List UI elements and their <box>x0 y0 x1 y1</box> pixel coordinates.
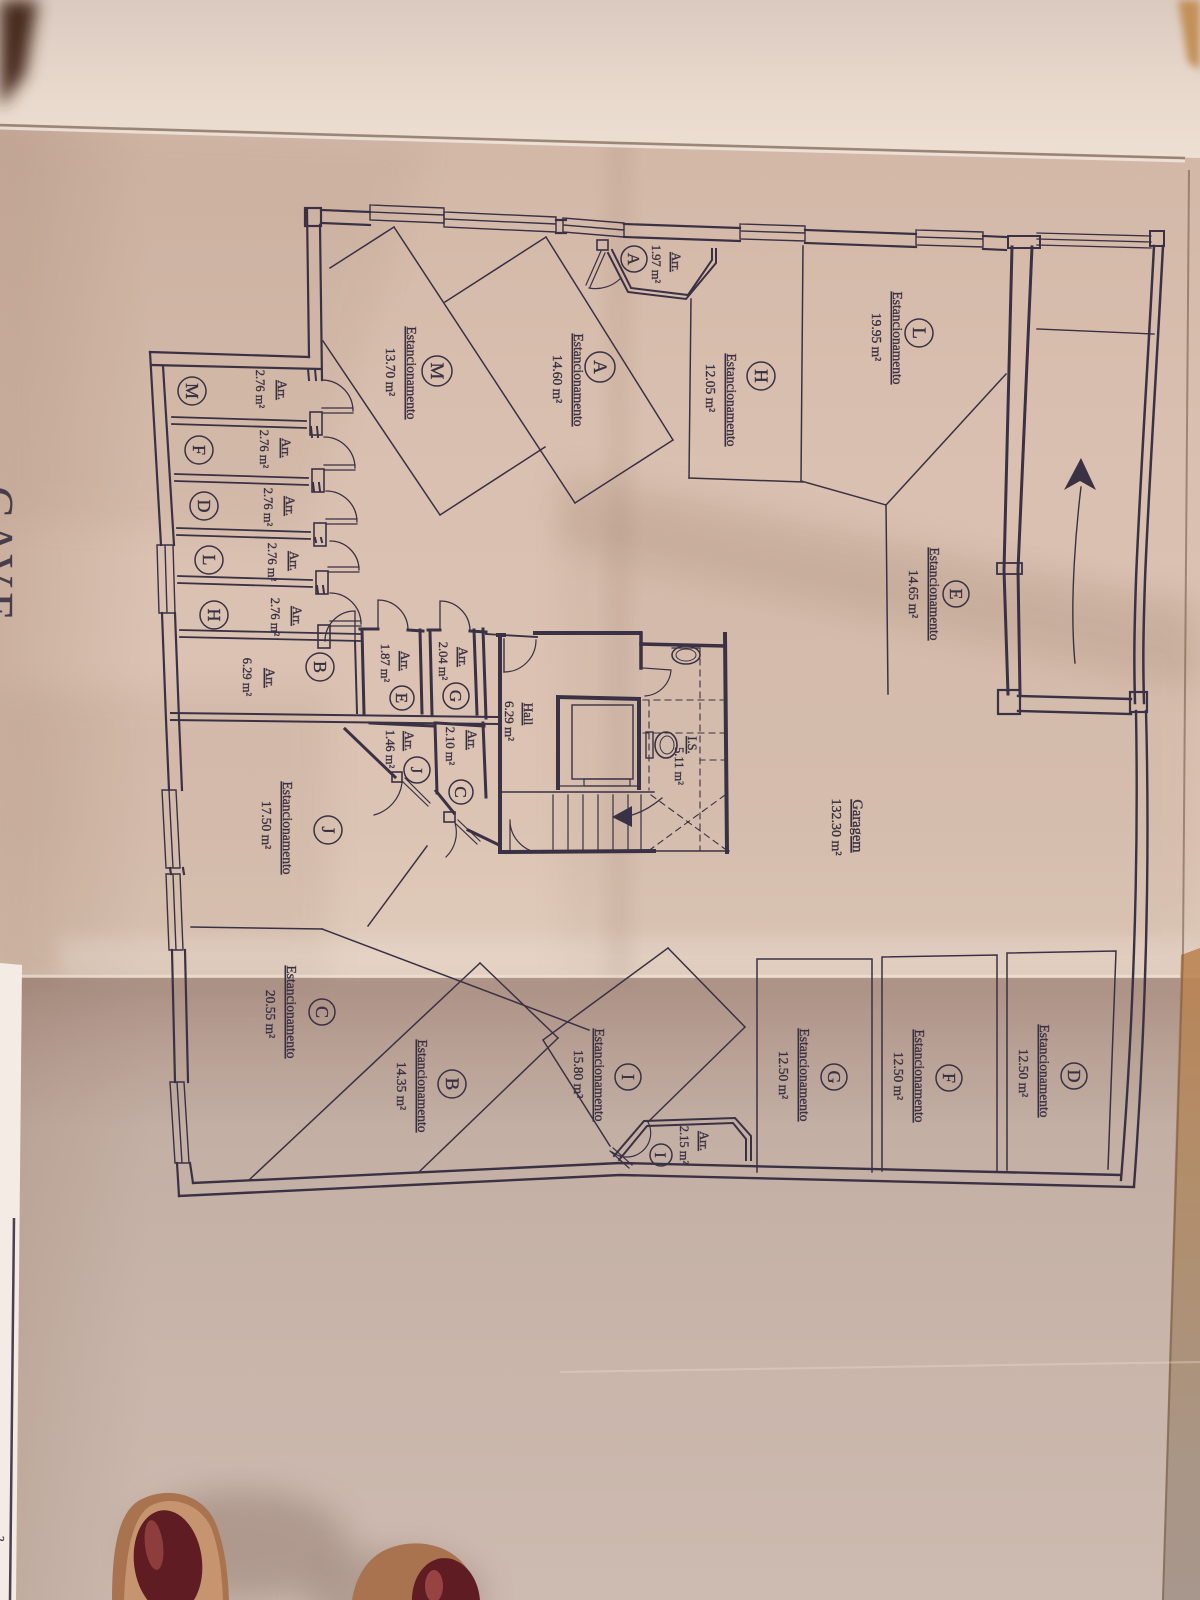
svg-text:2.76 m²: 2.76 m² <box>265 543 279 582</box>
svg-text:20.55 m²: 20.55 m² <box>263 990 278 1038</box>
svg-text:F: F <box>189 445 209 455</box>
svg-text:CAVE: CAVE <box>0 486 23 625</box>
svg-text:E: E <box>946 589 966 600</box>
svg-text:14.60 m²: 14.60 m² <box>550 355 565 403</box>
svg-text:Arr.: Arr. <box>402 731 416 751</box>
svg-text:17.50 m²: 17.50 m² <box>259 801 274 849</box>
svg-text:C: C <box>451 786 470 797</box>
svg-text:Arr.: Arr. <box>290 606 304 626</box>
svg-text:G: G <box>824 1071 844 1084</box>
svg-text:1.97 m²: 1.97 m² <box>649 245 663 284</box>
svg-text:Arr.: Arr. <box>263 668 277 688</box>
svg-text:-2: -2 <box>0 1532 6 1541</box>
svg-text:Arr.: Arr. <box>287 551 301 571</box>
svg-text:A: A <box>624 253 643 266</box>
svg-text:2.10 m²: 2.10 m² <box>443 727 457 766</box>
svg-text:2.76 m²: 2.76 m² <box>268 598 282 637</box>
svg-text:J: J <box>407 767 426 774</box>
svg-text:B: B <box>441 1078 462 1091</box>
svg-text:Estancionamento: Estancionamento <box>927 548 942 641</box>
svg-text:H: H <box>750 369 771 383</box>
svg-text:Arr.: Arr. <box>456 647 470 667</box>
svg-text:Estancionamento: Estancionamento <box>724 354 739 447</box>
svg-text:C: C <box>312 1006 332 1018</box>
svg-text:Estancionamento: Estancionamento <box>280 782 295 875</box>
svg-text:Estancionamento: Estancionamento <box>415 1040 430 1133</box>
svg-text:A: A <box>589 360 610 374</box>
svg-text:Garagem: Garagem <box>849 799 865 853</box>
svg-text:M: M <box>182 383 202 399</box>
svg-text:Arr.: Arr. <box>697 1131 711 1151</box>
svg-text:132.30 m²: 132.30 m² <box>828 798 843 855</box>
svg-text:G: G <box>446 690 465 702</box>
svg-text:2.15 m²: 2.15 m² <box>677 1126 691 1165</box>
svg-text:J: J <box>317 826 338 833</box>
svg-text:12.50 m²: 12.50 m² <box>891 1052 906 1100</box>
svg-text:12.05 m²: 12.05 m² <box>703 364 718 412</box>
svg-text:D: D <box>1064 1070 1084 1083</box>
svg-text:6.29 m²: 6.29 m² <box>502 701 517 741</box>
svg-text:1.46 m²: 1.46 m² <box>383 730 397 769</box>
svg-text:14.65 m²: 14.65 m² <box>906 570 921 618</box>
svg-text:Estancionamento: Estancionamento <box>284 966 299 1059</box>
svg-text:Arr.: Arr. <box>398 651 412 671</box>
svg-text:2.04 m²: 2.04 m² <box>436 642 450 681</box>
svg-text:1.87 m²: 1.87 m² <box>378 644 392 683</box>
svg-text:2.76 m²: 2.76 m² <box>257 430 271 469</box>
svg-text:Arr.: Arr. <box>283 496 297 516</box>
svg-text:F: F <box>939 1073 959 1083</box>
svg-text:D: D <box>194 500 214 513</box>
svg-text:E: E <box>392 693 411 703</box>
svg-text:B: B <box>310 661 330 673</box>
svg-text:Hall: Hall <box>521 703 536 726</box>
svg-text:Estancionamento: Estancionamento <box>797 1029 812 1122</box>
svg-text:Arr.: Arr. <box>275 380 289 400</box>
svg-text:Estancionamento: Estancionamento <box>912 1030 927 1123</box>
svg-text:L: L <box>199 555 219 566</box>
svg-text:12.50 m²: 12.50 m² <box>776 1051 791 1099</box>
svg-text:Estancionamento: Estancionamento <box>592 1029 607 1122</box>
svg-text:19.95 m²: 19.95 m² <box>869 313 884 361</box>
svg-text:Estancionamento: Estancionamento <box>1037 1025 1052 1118</box>
svg-text:Estancionamento: Estancionamento <box>890 292 905 385</box>
svg-text:Estancionamento: Estancionamento <box>571 334 586 427</box>
svg-text:Arr.: Arr. <box>669 252 683 272</box>
svg-text:12.50 m²: 12.50 m² <box>1016 1049 1031 1097</box>
svg-text:I: I <box>651 1152 668 1157</box>
svg-text:M: M <box>426 363 447 380</box>
svg-text:6.29 m²: 6.29 m² <box>240 658 254 697</box>
svg-text:15.80 m²: 15.80 m² <box>571 1050 586 1098</box>
svg-text:2.76 m²: 2.76 m² <box>261 488 275 527</box>
svg-text:5.11 m²: 5.11 m² <box>672 747 686 785</box>
svg-text:Estancionamento: Estancionamento <box>404 327 419 420</box>
svg-text:I.S.: I.S. <box>685 736 699 753</box>
svg-text:Arr.: Arr. <box>279 438 293 458</box>
svg-text:Arr.: Arr. <box>465 730 479 750</box>
svg-text:I: I <box>618 1074 638 1080</box>
svg-text:14.35 m²: 14.35 m² <box>394 1062 409 1110</box>
svg-text:2.76 m²: 2.76 m² <box>253 370 267 409</box>
svg-text:H: H <box>204 609 224 622</box>
svg-text:L: L <box>908 327 929 339</box>
svg-text:13.70 m²: 13.70 m² <box>383 348 398 396</box>
